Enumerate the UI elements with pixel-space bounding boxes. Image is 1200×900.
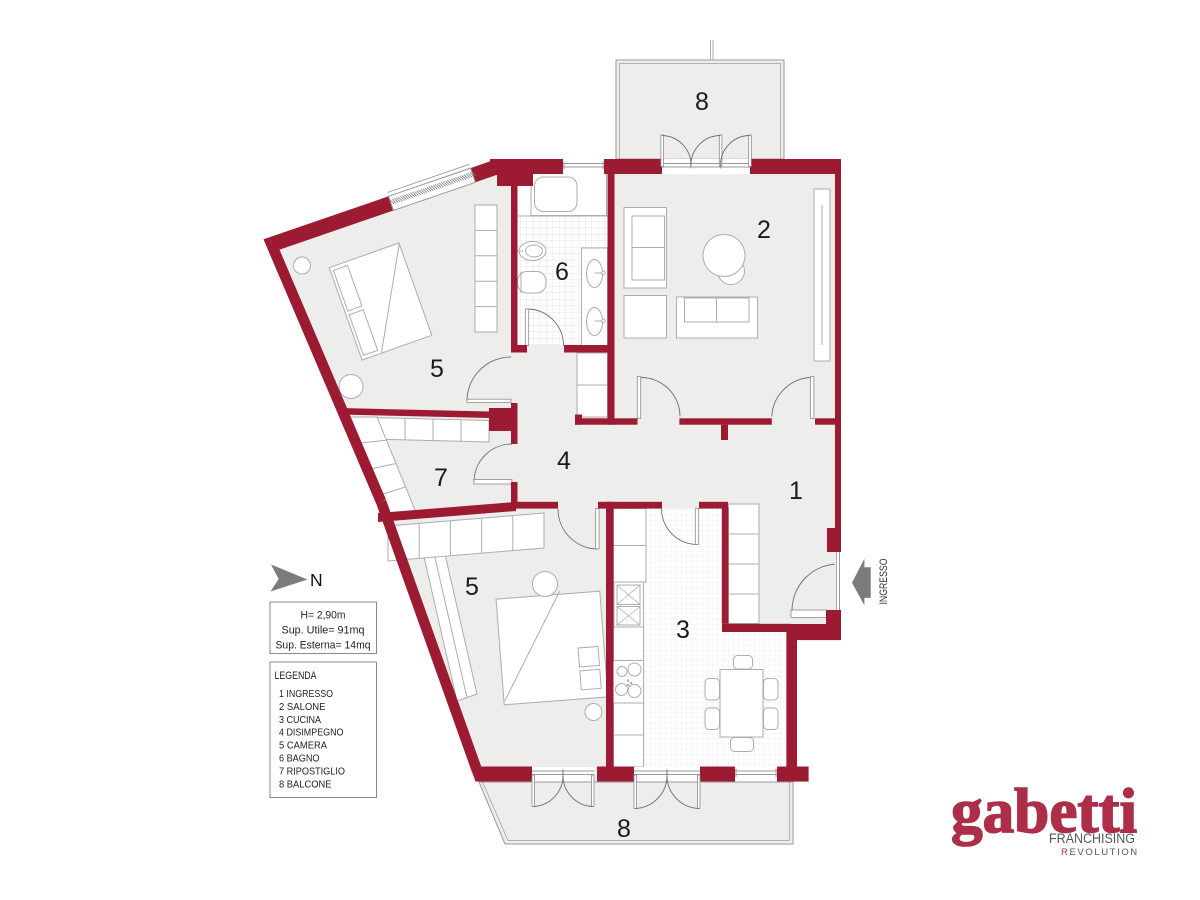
svg-text:N: N	[310, 570, 323, 590]
svg-text:REVOLUTION: REVOLUTION	[1061, 847, 1139, 858]
svg-text:3: 3	[676, 616, 690, 644]
svg-text:5: 5	[430, 355, 444, 383]
svg-text:LEGENDA: LEGENDA	[275, 670, 317, 682]
svg-text:FRANCHISING: FRANCHISING	[1049, 831, 1135, 846]
svg-text:7: 7	[434, 464, 448, 492]
svg-text:H= 2,90m: H= 2,90m	[301, 610, 346, 622]
svg-text:5 CAMERA: 5 CAMERA	[279, 740, 327, 752]
svg-text:8: 8	[617, 815, 631, 843]
svg-text:Sup. Utile= 91mq: Sup. Utile= 91mq	[282, 625, 365, 637]
svg-text:6: 6	[555, 258, 569, 286]
svg-text:4 DISIMPEGNO: 4 DISIMPEGNO	[279, 727, 344, 739]
svg-text:1 INGRESSO: 1 INGRESSO	[279, 688, 333, 700]
svg-text:8 BALCONE: 8 BALCONE	[279, 778, 332, 790]
svg-text:Sup. Esterna= 14mq: Sup. Esterna= 14mq	[276, 640, 371, 652]
svg-text:2 SALONE: 2 SALONE	[279, 701, 326, 713]
svg-text:2: 2	[757, 216, 771, 244]
svg-text:3 CUCINA: 3 CUCINA	[279, 714, 321, 726]
svg-text:8: 8	[695, 88, 709, 116]
svg-text:INGRESSO: INGRESSO	[878, 558, 890, 604]
svg-text:7 RIPOSTIGLIO: 7 RIPOSTIGLIO	[279, 765, 345, 777]
svg-text:4: 4	[557, 447, 571, 475]
svg-text:1: 1	[789, 477, 803, 505]
svg-text:5: 5	[465, 573, 479, 601]
svg-text:6 BAGNO: 6 BAGNO	[279, 753, 320, 765]
